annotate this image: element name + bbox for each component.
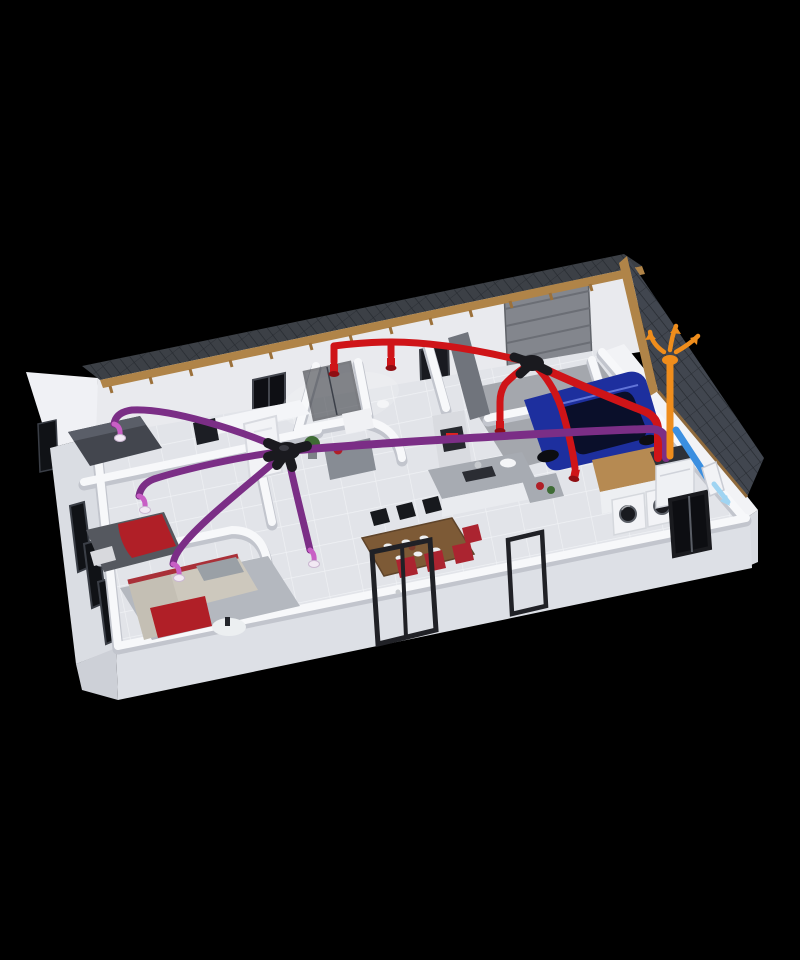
door-handle — [396, 590, 401, 595]
kitchen-sink — [500, 459, 516, 468]
extract-vent-wc — [386, 358, 397, 371]
extract-vent-bathroom — [329, 364, 340, 377]
render-canvas — [0, 0, 800, 960]
kitchen-plant — [547, 486, 555, 494]
red-pot — [536, 482, 544, 490]
house-cutaway-render — [0, 0, 800, 960]
toilet — [377, 400, 389, 408]
kettle — [475, 462, 482, 469]
roof-cowl — [662, 355, 678, 365]
coffee-table-bottle — [225, 617, 230, 626]
